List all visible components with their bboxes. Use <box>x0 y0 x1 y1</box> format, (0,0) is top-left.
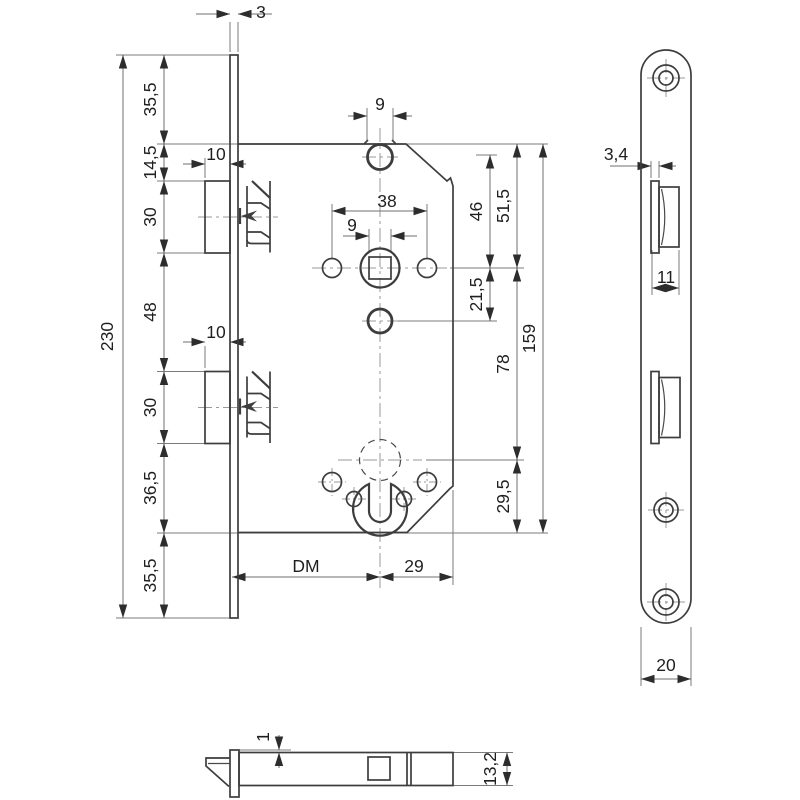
latch-bevel-arc-upper <box>662 189 665 245</box>
label-chain-6: 36,5 <box>140 471 160 505</box>
label-plate-to-case-offset: 1 <box>253 732 273 742</box>
faceplate-section <box>230 750 239 797</box>
label-chain-1: 35,5 <box>140 82 160 116</box>
latch-head-section <box>206 758 230 787</box>
label-top-hole-to-follower: 46 <box>466 202 486 221</box>
latch-cutout-upper <box>651 181 659 253</box>
label-follower-to-lower-hole: 21,5 <box>466 277 486 311</box>
label-case-thickness: 13,2 <box>480 752 500 786</box>
label-chain-4: 48 <box>140 302 160 321</box>
label-chain-2: 14,5 <box>140 145 160 179</box>
case-inner-detail <box>368 757 390 780</box>
extension-lines-main <box>116 22 548 618</box>
label-chain-5: 30 <box>140 398 160 418</box>
label-faceplate-thickness: 3 <box>256 2 266 22</box>
label-center-to-case-back: 29 <box>404 556 423 576</box>
label-plate-width: 20 <box>656 655 676 675</box>
latch-face-upper <box>659 187 679 247</box>
top-view <box>206 750 453 797</box>
faceplate-edge <box>230 55 238 618</box>
mortise-lock-drawing: 3 9 38 9 10 10 DM 29 35,5 14,5 30 48 30 … <box>0 0 800 800</box>
faceplate-front-view <box>641 50 691 623</box>
extension-lines-faceplate-view <box>641 161 691 686</box>
dimension-labels: 3 9 38 9 10 10 DM 29 35,5 14,5 30 48 30 … <box>97 2 676 786</box>
label-fixing-hole-span: 38 <box>377 191 396 211</box>
label-case-top-to-follower: 51,5 <box>493 189 513 223</box>
label-chain-3: 30 <box>140 207 160 227</box>
faceplate-outline <box>641 50 691 623</box>
label-top-hole-width: 9 <box>375 94 385 114</box>
label-latch-lip: 3,4 <box>604 144 629 164</box>
main-view <box>205 55 453 618</box>
label-deadlatch-projection: 10 <box>206 322 226 342</box>
label-follower-to-cylinder: 78 <box>493 354 513 373</box>
label-overall-height: 230 <box>97 322 117 351</box>
label-chain-7: 35,5 <box>140 558 160 592</box>
label-latch-projection: 10 <box>206 144 226 164</box>
label-backset: DM <box>292 556 319 576</box>
label-latch-cutout-width: 11 <box>657 267 675 287</box>
label-follower-square: 9 <box>347 215 357 235</box>
dimension-lines <box>123 14 691 786</box>
latch-face-lower <box>659 378 680 438</box>
technical-drawing-page: 3 9 38 9 10 10 DM 29 35,5 14,5 30 48 30 … <box>0 0 800 800</box>
label-case-length: 159 <box>519 324 539 353</box>
case-rib-lines <box>407 753 411 786</box>
label-cylinder-to-case-bottom: 29,5 <box>493 479 513 513</box>
case-section <box>239 753 453 786</box>
latch-bevel-arc-lower <box>662 380 665 436</box>
latch-cutout-lower <box>651 372 659 444</box>
